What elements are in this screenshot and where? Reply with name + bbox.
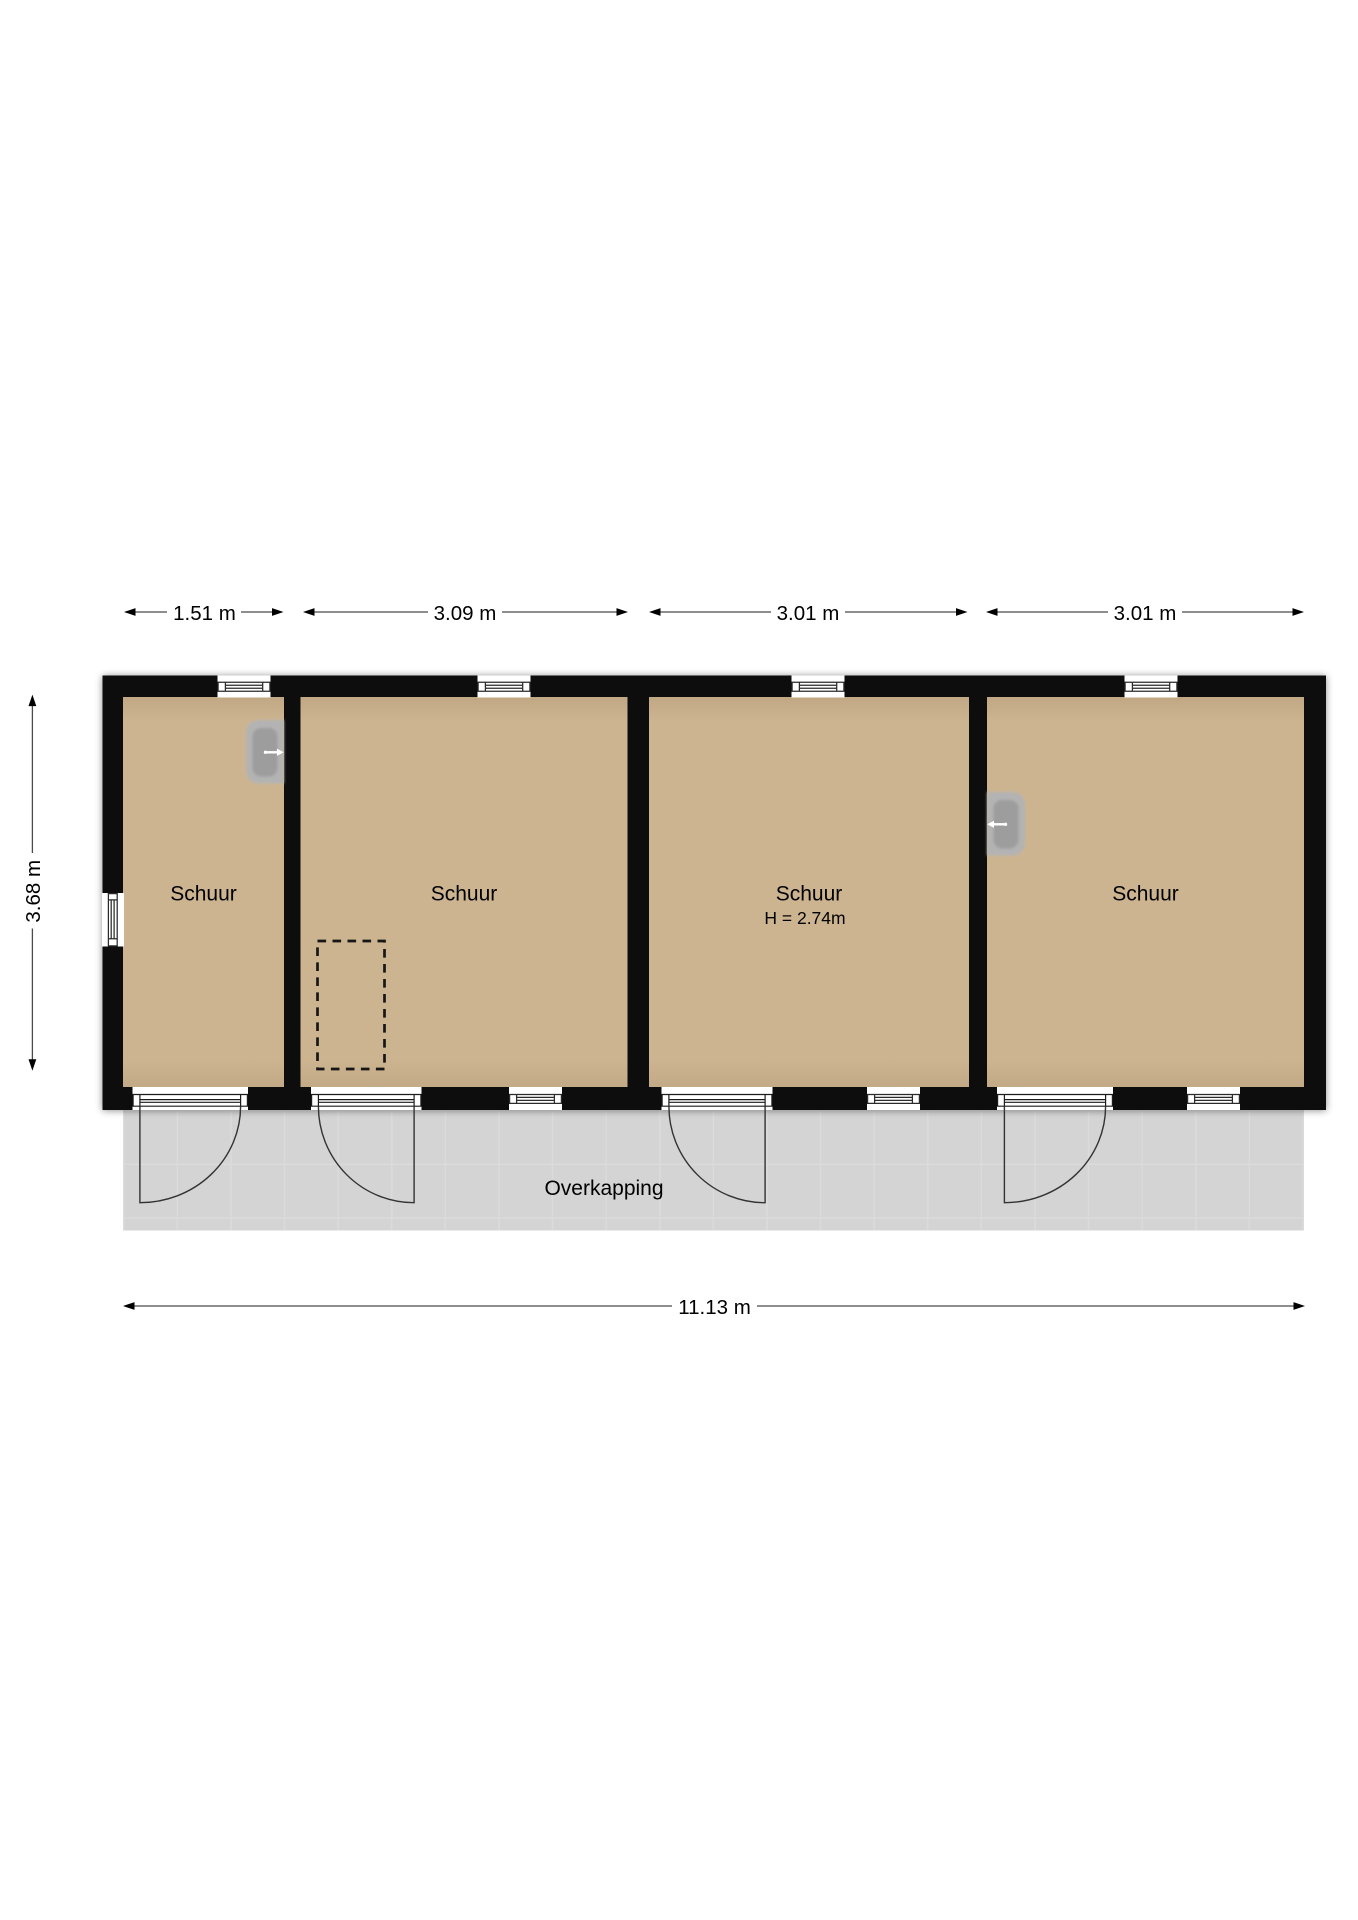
svg-text:Schuur: Schuur [1112,883,1179,906]
svg-text:Schuur: Schuur [431,883,498,906]
svg-text:3.01 m: 3.01 m [1114,602,1177,625]
svg-text:Schuur: Schuur [170,883,237,906]
svg-text:Schuur: Schuur [776,883,843,906]
svg-text:H = 2.74m: H = 2.74m [764,908,845,928]
svg-text:1.51 m: 1.51 m [173,602,236,625]
svg-text:3.01 m: 3.01 m [777,602,840,625]
svg-text:3.09 m: 3.09 m [434,602,497,625]
svg-text:Overkapping: Overkapping [544,1177,663,1200]
svg-text:3.68 m: 3.68 m [22,860,45,923]
svg-text:11.13 m: 11.13 m [678,1296,751,1319]
